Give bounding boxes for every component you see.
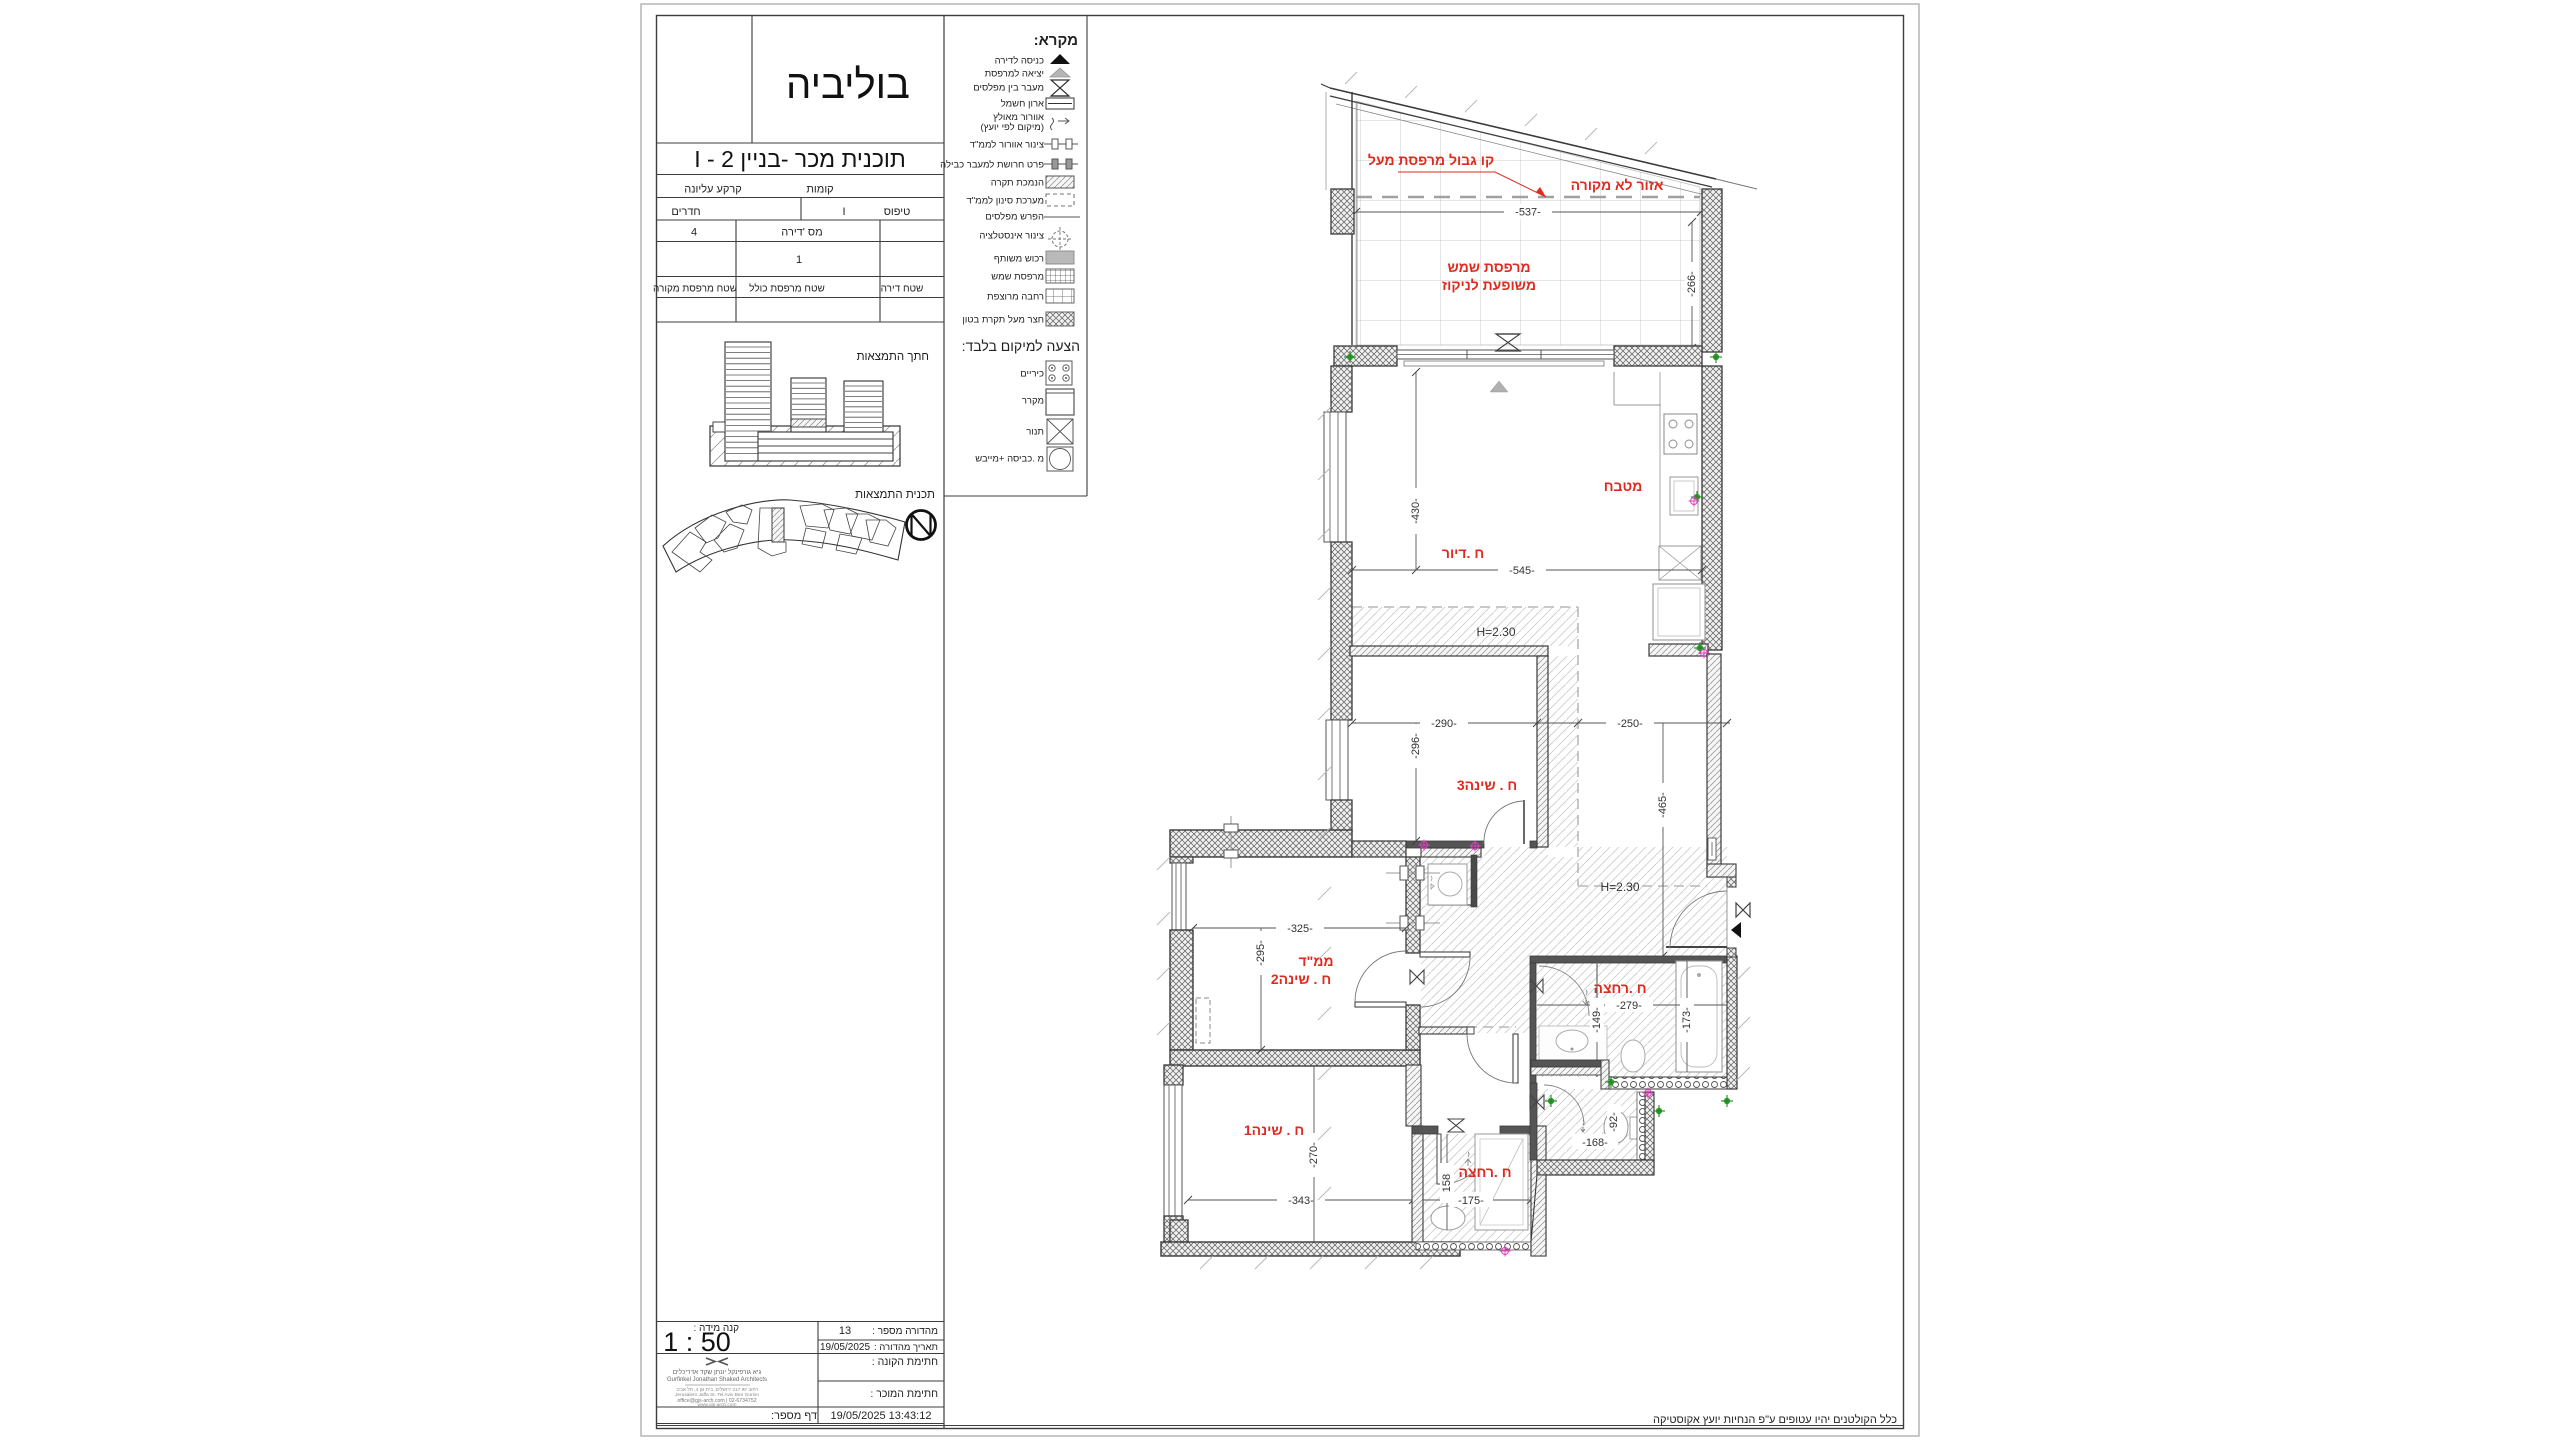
svg-text:מקרא:: מקרא: (1034, 32, 1078, 49)
svg-text:צינור אינסטלציה: צינור אינסטלציה (979, 230, 1044, 242)
svg-text:משופעת לניקוז: משופעת לניקוז (1442, 277, 1536, 293)
svg-text:מרפסת שמש: מרפסת שמש (991, 272, 1044, 283)
svg-text:פרט חרושת למעבר כבילה: פרט חרושת למעבר כבילה (940, 159, 1044, 171)
svg-text:-290-: -290- (1431, 718, 1457, 730)
svg-text:תאריך מהדורה :: תאריך מהדורה : (874, 1342, 938, 1353)
svg-text:שטח מרפסת מקורה: שטח מרפסת מקורה (653, 284, 737, 295)
svg-text:-545-: -545- (1509, 565, 1535, 577)
svg-text:מהדורה מספר :: מהדורה מספר : (872, 1326, 938, 1337)
svg-text:-149-: -149- (1591, 1007, 1603, 1033)
svg-text:-175-: -175- (1458, 1195, 1484, 1207)
svg-text:www.gjs-arch.com: www.gjs-arch.com (698, 1402, 737, 1408)
svg-text:ארון חשמל: ארון חשמל (1001, 98, 1044, 110)
svg-text:ח . שינה2: ח . שינה2 (1271, 971, 1331, 987)
svg-text:-430-: -430- (1410, 498, 1422, 524)
svg-text:-266-: -266- (1686, 271, 1698, 297)
svg-text:מטבח: מטבח (1604, 478, 1643, 494)
svg-text:-295-: -295- (1255, 940, 1267, 966)
svg-text:ח . שינה3: ח . שינה3 (1457, 777, 1517, 793)
svg-text:גיא גורפינקל יונתן שקד אדריכלי: גיא גורפינקל יונתן שקד אדריכלים (673, 1368, 762, 1376)
svg-text:Gurfinkel Jonathan Shaked Arch: Gurfinkel Jonathan Shaked Architects (667, 1377, 767, 1383)
svg-text:4: 4 (691, 227, 697, 239)
svg-text:ח . שינה1: ח . שינה1 (1244, 1122, 1304, 1138)
svg-text:הנמכת תקרה: הנמכת תקרה (991, 178, 1044, 189)
svg-text:ממ"ד: ממ"ד (1298, 953, 1333, 969)
svg-text:מערכת סינון לממ"ד: מערכת סינון לממ"ד (967, 195, 1044, 207)
svg-text:חתימת המוכר :: חתימת המוכר : (870, 1388, 938, 1400)
svg-text:יציאה למרפסת: יציאה למרפסת (985, 68, 1044, 80)
svg-text:מקרר: מקרר (1022, 396, 1044, 407)
svg-text:אזור לא מקורה: אזור לא מקורה (1571, 177, 1664, 193)
svg-text:מעבר בין מפלסים: מעבר בין מפלסים (973, 82, 1044, 94)
svg-text:-173-: -173- (1681, 1007, 1693, 1033)
svg-text:-92-: -92- (1608, 1112, 1620, 1132)
svg-text:19/05/2025 13:43:12: 19/05/2025 13:43:12 (831, 1410, 932, 1422)
svg-text:ח .רחצה: ח .רחצה (1458, 1164, 1511, 1180)
svg-text:-465-: -465- (1657, 792, 1669, 818)
svg-text:כניסה לדירה: כניסה לדירה (995, 55, 1044, 67)
svg-text:שטח דירה: שטח דירה (881, 284, 924, 295)
svg-text:H=2.30: H=2.30 (1600, 880, 1639, 894)
svg-text:כלל הקולטנים יהיו עטופים ע"פ ה: כלל הקולטנים יהיו עטופים ע"פ הנחיות יועץ… (1653, 1413, 1897, 1426)
svg-text:ח .דיור: ח .דיור (1442, 545, 1484, 561)
svg-text:צינור אוורור לממ"ד: צינור אוורור לממ"ד (970, 139, 1044, 151)
svg-text:-279-: -279- (1616, 1000, 1642, 1012)
svg-text:H=2.30: H=2.30 (1476, 625, 1515, 639)
svg-text:-168-: -168- (1582, 1137, 1608, 1149)
svg-text:מ .כביסה +מייבש: מ .כביסה +מייבש (975, 454, 1044, 465)
svg-text:רחבה מרוצפת: רחבה מרוצפת (987, 292, 1044, 303)
svg-text:-270-: -270- (1308, 1142, 1320, 1168)
svg-text:שטח מרפסת כולל: שטח מרפסת כולל (749, 283, 825, 295)
svg-text:טיפוס: טיפוס (884, 206, 911, 218)
svg-text:תכנית התמצאות: תכנית התמצאות (855, 489, 935, 501)
svg-text:חתך התמצאות: חתך התמצאות (857, 351, 929, 363)
svg-text:חדרים: חדרים (671, 206, 700, 218)
svg-text:הפרש מפלסים: הפרש מפלסים (985, 211, 1044, 223)
svg-text:הצעה למיקום בלבד:: הצעה למיקום בלבד: (962, 338, 1080, 354)
svg-text:מס 'דירה: מס 'דירה (781, 227, 822, 239)
svg-text:I: I (842, 206, 845, 218)
svg-text:-343-: -343- (1288, 1195, 1314, 1207)
svg-text:דף מספר:: דף מספר: (771, 1410, 817, 1422)
svg-text:-325-: -325- (1287, 923, 1313, 935)
svg-text:1 : 50: 1 : 50 (663, 1327, 731, 1357)
svg-text:-250-: -250- (1617, 718, 1643, 730)
svg-text:1: 1 (796, 254, 802, 266)
svg-text:בוליביה: בוליביה (786, 63, 910, 107)
svg-text:-537-: -537- (1515, 207, 1541, 219)
svg-text:רכוש משותף: רכוש משותף (994, 254, 1044, 265)
svg-text:13: 13 (839, 1325, 851, 1337)
svg-text:חתימת הקונה :: חתימת הקונה : (872, 1356, 938, 1368)
svg-text:תנור: תנור (1026, 427, 1044, 438)
svg-text:-296-: -296- (1410, 733, 1422, 759)
svg-text:קומות: קומות (806, 184, 833, 196)
svg-text:חצר מעל תקרת בטון: חצר מעל תקרת בטון (962, 314, 1044, 326)
svg-text:(מיקום לפי יועץ): (מיקום לפי יועץ) (981, 121, 1044, 133)
svg-text:158: 158 (1441, 1174, 1453, 1192)
svg-text:ח .רחצה: ח .רחצה (1593, 980, 1646, 996)
svg-text:קו גבול מרפסת מעל: קו גבול מרפסת מעל (1368, 152, 1494, 168)
svg-text:קרקע עליונה: קרקע עליונה (684, 183, 742, 196)
svg-text:מרפסת שמש: מרפסת שמש (1447, 259, 1530, 275)
svg-text:רחוב יפו 217 ירושלים, בית וגן: רחוב יפו 217 ירושלים, בית וגן 4, תל אביב (676, 1386, 759, 1393)
svg-text:תוכנית מכר -בניין 2 - I: תוכנית מכר -בניין 2 - I (694, 146, 906, 172)
svg-text:כיריים: כיריים (1020, 369, 1044, 380)
svg-text:19/05/2025: 19/05/2025 (820, 1342, 870, 1353)
